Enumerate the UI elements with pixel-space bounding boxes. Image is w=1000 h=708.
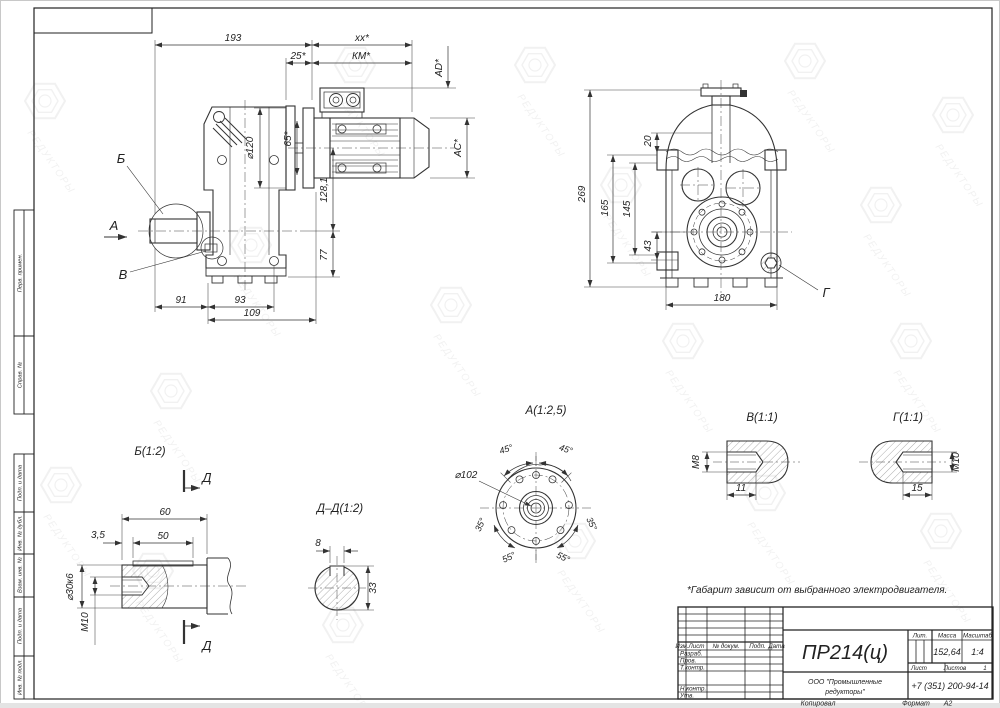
top-left-stamp-box [34,8,152,33]
dim-m10-g: М10 [951,452,962,472]
format-label: Формат [902,701,930,708]
dim-180: 180 [714,293,731,304]
detail-b-title: Б(1:2) [134,446,165,458]
margin-label: Инв. № дубл. [18,515,24,551]
label-detail-b: Б [117,151,126,166]
tb-tkontr: Т.контр. [680,665,705,672]
dim-motor-length: xx* [354,33,370,44]
tb-sheet: Лист [910,665,927,672]
sheets-count: 1 [983,665,986,672]
dim-m8: М8 [691,455,702,469]
dim-165: 165 [600,199,611,216]
detail-v-callout-circle [201,237,223,259]
label-detail-v: В [119,267,128,282]
dim-pilot: 65* [283,130,294,146]
dim-102: ⌀102 [455,470,478,481]
dim-91: 91 [175,295,186,306]
tb-prov: Пров. [680,658,696,665]
dim-flange-dia: ⌀120 [245,136,256,159]
dim-km: КМ* [352,51,371,62]
dim-269: 269 [577,185,588,203]
dim-3-5: 3,5 [91,530,105,541]
tb-masshtab: Масштаб [963,633,992,640]
tb-data: Дата [767,643,785,650]
dim-35-right: 35° [584,515,599,532]
tb-podp: Подп. [749,643,765,650]
view-front [584,80,818,310]
detail-v-title: В(1:1) [746,412,777,424]
dim-55-left: 55° [500,550,517,565]
dim-33: 33 [368,582,379,594]
title-block-texts: Изм. Лист № докум. Подп. Дата Разраб. Пр… [675,633,992,708]
dim-60: 60 [159,507,171,518]
doc-number: ПР214(ц) [802,642,888,664]
detail-a-texts: А(1:2,5) ⌀102 45° 45° 35° 35° 55° 55° [455,405,600,565]
tb-utv: Утв. [679,693,694,700]
dim-adapter: 25* [289,51,306,62]
dim-145: 145 [622,200,633,217]
section-label-d-top: Д [200,470,211,485]
margin-label: Перв. примен. [18,254,24,293]
dim-total-length: 193 [225,33,242,44]
dim-109: 109 [244,308,261,319]
dim-45-right: 45° [558,442,574,456]
dim-shaft-dia: ⌀30к6 [65,573,76,601]
format-value: А2 [943,701,953,708]
dim-base-height: 77 [319,249,330,261]
dim-93: 93 [234,295,246,306]
section-dd [308,546,374,620]
section-dd-title: Д–Д(1:2) [315,503,363,515]
scale-value: 1:4 [971,647,984,657]
dim-8: 8 [315,538,321,549]
drawing-sheet: Перв. примен. Справ. № Подп. и дата Инв.… [0,0,1000,708]
view-side [104,40,475,324]
detail-b-texts: Б(1:2) 60 50 3,5 ⌀30к6 М10 Д Д [65,446,212,653]
dim-43: 43 [643,240,654,252]
detail-b [77,470,246,645]
margin-label: Подп. и дата [18,464,24,501]
detail-a [479,452,592,564]
dim-35-left: 35° [473,516,488,533]
dim-11: 11 [736,483,746,494]
dim-50: 50 [157,531,169,542]
dim-15: 15 [911,483,923,494]
margin-label: Взам. инв. № [18,557,24,593]
footnote: *Габарит зависит от выбранного электродв… [687,584,947,596]
dim-m10: М10 [80,612,91,632]
margin-field-labels: Перв. примен. Справ. № Подп. и дата Инв.… [18,254,24,695]
margin-label: Справ. № [18,362,24,388]
tb-list: Лист [688,643,705,650]
dim-axis-offset: 128,1 [319,177,330,202]
tb-massa: Масса [938,633,957,640]
tb-nkontr: Н.контр. [680,686,706,693]
dim-ac: AC* [453,138,464,158]
section-label-d-bottom: Д [200,638,211,653]
dim-55-right: 55° [555,550,572,565]
margin-label: Подп. и дата [18,607,24,644]
phone: +7 (351) 200-94-14 [911,681,988,691]
detail-g [859,441,957,500]
company-line2: редукторы" [824,688,865,696]
detail-v [702,441,800,500]
label-detail-g: Г [822,285,830,300]
dim-45-left: 45° [498,442,514,456]
tb-sheets: Листов [943,665,967,672]
view-front-texts: 269 165 145 43 20 180 Г [577,135,830,304]
tb-doc: № докум. [712,643,739,650]
dim-ad: AD* [434,58,445,78]
drawing-canvas: Перв. примен. Справ. № Подп. и дата Инв.… [0,0,1000,708]
tb-lit: Лит. [912,633,928,640]
tb-izm: Изм. [675,643,688,650]
detail-a-title: А(1:2,5) [525,405,567,417]
dim-20: 20 [643,135,654,148]
company-line1: ООО "Промышленные [808,679,882,686]
copied-label: Копировал [801,701,836,708]
mass-value: 152,64 [933,647,961,657]
label-view-a: А [109,218,119,233]
margin-label: Инв. № подл. [18,659,24,695]
detail-g-title: Г(1:1) [893,412,923,424]
tb-razrab: Разраб. [680,651,702,658]
